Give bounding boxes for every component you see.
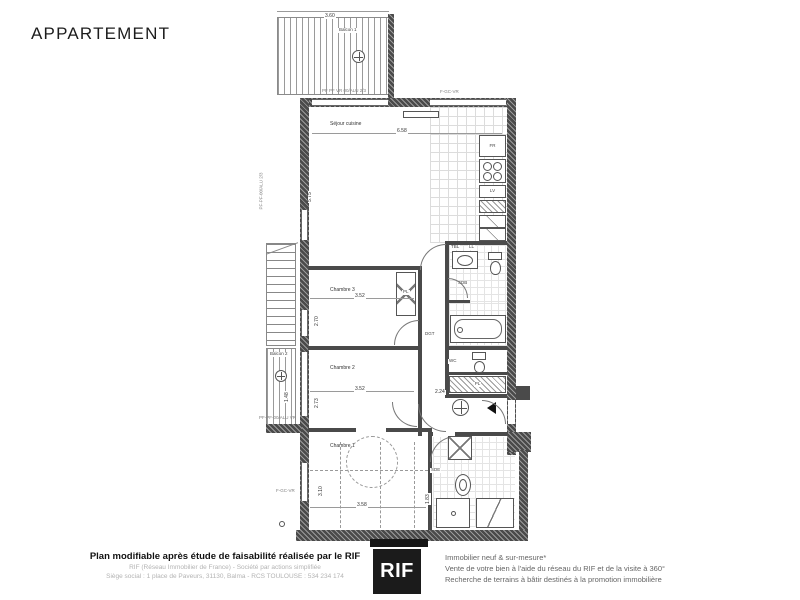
balcony2-height-dim: 1.48 <box>285 391 290 403</box>
chambre3-width-dim: 3.52 <box>354 294 366 299</box>
balcony2-label: Balcon 2 <box>269 352 289 357</box>
balcony1-label: Balcon 1 <box>338 28 358 33</box>
bathtub <box>450 315 506 343</box>
footer-service-2: Vente de votre bien à l'aide du réseau d… <box>445 564 665 575</box>
wc-toilet-tank <box>472 352 486 360</box>
wc-toilet-bowl <box>474 361 485 373</box>
balcony1-drain-icon <box>352 50 365 63</box>
kitchen-cabinet <box>479 228 506 241</box>
window-kitchen <box>430 99 506 106</box>
chambre3-label: Chambre 3 <box>330 288 355 293</box>
burner-icon <box>493 162 502 171</box>
footer-service-3: Recherche de terrains à bâtir destinés à… <box>445 575 665 586</box>
chambre1-slope-line <box>310 470 428 471</box>
chambre2-width-dim: 3.52 <box>354 387 366 392</box>
kitchen-sink <box>479 200 506 213</box>
elec-panel-label: TBL <box>450 245 460 250</box>
closet-couloir: PL <box>449 376 506 393</box>
wall-chambre1-right <box>428 432 432 530</box>
wc-label: WC <box>448 359 458 364</box>
kitchen-cabinet <box>479 215 506 228</box>
footer-service-1: Immobilier neuf & sur-mesure* <box>445 553 665 564</box>
washer-label: LL <box>468 245 475 250</box>
window-chambre1 <box>301 463 308 501</box>
window-tag-bottom-left: F-GC-VR <box>276 489 295 494</box>
wall-chambre3-top <box>308 266 422 270</box>
footer-right: Immobilier neuf & sur-mesure* Vente de v… <box>445 553 665 586</box>
entry-duct-icon <box>452 399 469 416</box>
page: APPARTEMENT 3.60 Balcon 1 PF PF VR 00/AL… <box>0 0 800 600</box>
chambre1-slope-line <box>340 442 341 528</box>
balcony1-deck <box>277 17 389 95</box>
window-balcony-slider <box>312 99 388 106</box>
footer-address-line: Siège social : 1 place de Paveurs, 31130… <box>80 573 370 581</box>
sdb-vanity <box>452 251 478 269</box>
burner-icon <box>483 172 492 181</box>
footer-left: Plan modifiable après étude de faisabili… <box>80 551 370 581</box>
footer-disclaimer: Plan modifiable après étude de faisabili… <box>80 551 370 562</box>
rif-logo: RIF <box>373 549 421 594</box>
balcony1-right-wall <box>388 14 394 98</box>
chambre2-label: Chambre 2 <box>330 366 355 371</box>
balcony2-drain-icon <box>275 370 287 382</box>
section-mark <box>370 539 428 547</box>
chambre1-height-dim: 3.10 <box>319 485 324 497</box>
wall-right-lower <box>519 450 528 540</box>
burner-icon <box>483 162 492 171</box>
fridge-label: FR <box>489 144 497 149</box>
sde-shower <box>436 498 470 528</box>
wall-chambre3-bottom <box>308 346 422 350</box>
balcony2-bottom-wall <box>266 424 302 433</box>
cooktop <box>479 159 506 183</box>
chambre1-dashed-circle <box>346 436 398 488</box>
balcony1-width-dim: 3.60 <box>324 14 336 19</box>
chambre2-height-dim: 2.73 <box>315 397 320 409</box>
closet-chambre3-label: PL <box>402 290 410 295</box>
sejour-height-dim: 5.75 <box>308 191 313 203</box>
chambre3-door-arc <box>394 320 419 345</box>
hall-width-dim: 2.24 <box>434 390 446 395</box>
entrance-door-arc <box>482 400 506 424</box>
shower-drain-icon <box>451 511 456 516</box>
window-balcony2-door <box>301 352 308 416</box>
footer-company-line: RIF (Réseau Immobilier de France) - Soci… <box>80 564 370 572</box>
dishwasher: LV <box>479 185 506 198</box>
sdb-toilet-tank <box>488 252 502 260</box>
sde-sink-icon <box>455 474 471 496</box>
sdb-sink-icon <box>457 255 473 266</box>
sejour-counter <box>403 111 439 118</box>
wall-right-step <box>507 432 531 452</box>
balcony1-dim-line <box>277 11 389 12</box>
burner-icon <box>493 172 502 181</box>
sejour-width-dim: 6.58 <box>396 129 408 134</box>
entrance-door-opening <box>508 400 515 424</box>
window-tag-balcony2: PF-PF-00/ALU VR <box>259 416 296 421</box>
entrance-jamb <box>516 386 530 400</box>
window-tag-sejour-left: PF-PF-00/ALU 2/3 <box>260 172 265 209</box>
sdb-toilet-bowl <box>490 261 501 275</box>
sde-label: SDE <box>430 468 441 473</box>
closet-sde <box>448 436 472 460</box>
chambre2-door-arc <box>392 402 417 427</box>
bathtub-drain-icon <box>457 327 463 333</box>
window-sejour-left <box>301 210 308 240</box>
sde-sink-basin <box>459 479 467 491</box>
dishwasher-label: LV <box>489 189 496 194</box>
window-tag-top-balcony: PF PF VR 00/ALU 2/3 <box>322 89 366 94</box>
window-chambre3 <box>301 310 308 336</box>
chambre1-dim-line <box>310 507 426 508</box>
chambre3-height-dim: 2.70 <box>315 315 320 327</box>
page-title: APPARTEMENT <box>31 24 170 44</box>
sejour-corridor-door-arc <box>420 244 446 270</box>
dgt-label: DGT <box>424 332 436 337</box>
chambre1-door-opening <box>356 428 386 432</box>
sde-sloped-unit <box>476 498 514 528</box>
staircase <box>266 243 296 346</box>
wall-sdb-bath <box>445 300 470 303</box>
chambre1-width-dim: 3.58 <box>356 503 368 508</box>
chambre1-slope-line <box>414 442 415 528</box>
survey-point-icon <box>279 521 285 527</box>
sde-height-dim: 1.83 <box>426 493 431 505</box>
closet-couloir-label: PL <box>474 382 482 387</box>
window-tag-top-right: F-GC-VR <box>440 90 459 95</box>
sejour-label: Séjour cuisine <box>330 122 361 127</box>
chambre1-slope-line <box>380 442 381 528</box>
wall-pl-hall <box>445 394 507 398</box>
wall-bath-wc <box>445 346 507 350</box>
fridge: FR <box>479 135 506 157</box>
